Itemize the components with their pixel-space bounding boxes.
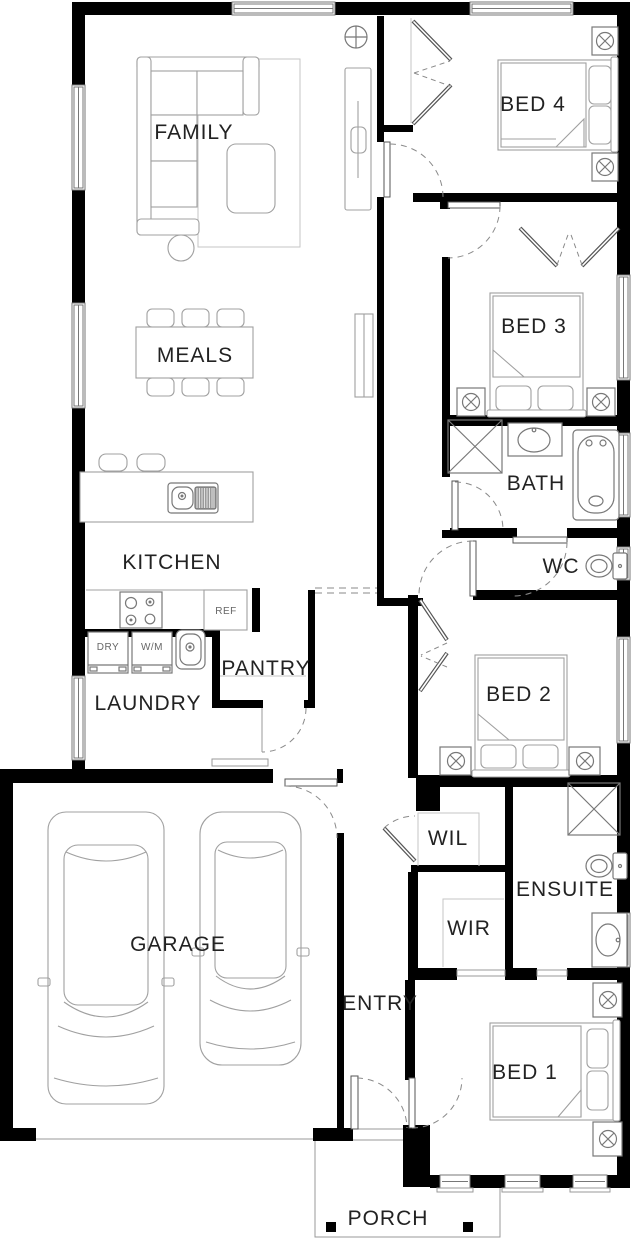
- headboard: [472, 770, 570, 777]
- room-label-porch: PORCH: [348, 1207, 429, 1230]
- door-bath: [452, 481, 503, 530]
- kitchen-bulkhead-dashed: [315, 588, 377, 593]
- ceiling-fan-icon: [345, 26, 367, 48]
- pillow: [481, 745, 516, 768]
- ensuite-toilet: [586, 853, 627, 879]
- pillow: [589, 106, 611, 144]
- stool: [99, 454, 127, 471]
- kitchen-island: [80, 454, 253, 522]
- floor-plan-page: FAMILY MEALS KITCHEN PANTRY LAUNDRY GARA…: [0, 0, 640, 1241]
- room-label-bed1: BED 1: [492, 1061, 558, 1084]
- room-label-garage: GARAGE: [130, 933, 226, 956]
- floor-plan-svg: FAMILY MEALS KITCHEN PANTRY LAUNDRY GARA…: [0, 0, 640, 1241]
- ensuite-vanity: [592, 913, 627, 967]
- room-label-wc: WC: [543, 555, 580, 578]
- room-label-wir: WIR: [447, 917, 491, 940]
- window-bed4-top: [470, 2, 573, 15]
- opening-ensuite-bed1: [537, 970, 567, 976]
- pillow: [587, 1071, 608, 1110]
- bed3: [487, 293, 586, 417]
- door-bed2: [419, 541, 476, 596]
- cooktop: [120, 592, 162, 628]
- bath-shower: [448, 420, 502, 473]
- window-family-left: [72, 85, 85, 190]
- window-family-top: [232, 2, 335, 15]
- pillow: [587, 1029, 608, 1068]
- robe-bed3-bifold: [520, 228, 619, 266]
- ensuite-shower: [568, 783, 620, 835]
- window-bed1-front-3: [570, 1175, 610, 1192]
- opening-laundry-hall: [212, 759, 268, 766]
- room-label-bath: BATH: [507, 472, 565, 495]
- room-label-pantry: PANTRY: [221, 657, 310, 680]
- car-1: [38, 812, 174, 1104]
- door-pantry: [262, 708, 306, 752]
- pillow: [496, 386, 531, 410]
- headboard: [487, 410, 586, 417]
- appliance-label-fridge: REF: [215, 606, 237, 617]
- room-label-bed3: BED 3: [501, 315, 567, 338]
- room-label-family: FAMILY: [154, 121, 233, 144]
- robe-bed2-bifold: [420, 600, 447, 691]
- wc-toilet: [586, 553, 627, 579]
- pillow: [538, 386, 573, 410]
- room-label-entry: ENTRY: [342, 992, 418, 1015]
- door-front: [351, 1076, 407, 1129]
- pillow: [523, 745, 558, 768]
- appliance-label-dryer: DRY: [97, 642, 119, 653]
- room-label-bed4: BED 4: [500, 93, 566, 116]
- room-label-meals: MEALS: [157, 344, 233, 367]
- door-garage-internal: [285, 779, 337, 838]
- appliance-label-washer: W/M: [141, 642, 163, 653]
- window-bed3-right: [617, 275, 630, 380]
- door-bed1: [409, 1078, 462, 1128]
- porch-post: [326, 1222, 336, 1232]
- pillow: [589, 66, 611, 104]
- room-label-bed2: BED 2: [486, 683, 552, 706]
- room-label-laundry: LAUNDRY: [95, 692, 202, 715]
- door-wil: [384, 816, 415, 861]
- tv-unit: [345, 68, 371, 210]
- bath-vanity: [508, 423, 562, 456]
- walls: [0, 2, 630, 1188]
- headboard: [611, 57, 618, 152]
- window-bed1-front-2: [502, 1175, 543, 1192]
- laundry-trough: [176, 630, 205, 669]
- bathtub: [573, 430, 619, 520]
- stool: [137, 454, 165, 471]
- door-bed3: [448, 202, 500, 258]
- window-laundry-left: [72, 676, 85, 760]
- window-bed1-front-1: [437, 1175, 473, 1192]
- headboard: [613, 1020, 620, 1121]
- opening-wir-bed1: [457, 970, 505, 976]
- side-table: [168, 235, 194, 261]
- door-family-hall: [384, 142, 443, 197]
- window-meals-left: [72, 303, 85, 408]
- room-label-kitchen: KITCHEN: [122, 551, 221, 574]
- robe-bed4-bifold: [411, 18, 451, 124]
- window-bed2-right: [617, 637, 630, 743]
- bed2: [472, 655, 570, 777]
- room-label-wil: WIL: [428, 827, 468, 850]
- room-label-ensuite: ENSUITE: [516, 878, 614, 901]
- front-door-sill: [353, 1129, 403, 1140]
- porch-post: [463, 1222, 473, 1232]
- coffee-table: [227, 144, 275, 213]
